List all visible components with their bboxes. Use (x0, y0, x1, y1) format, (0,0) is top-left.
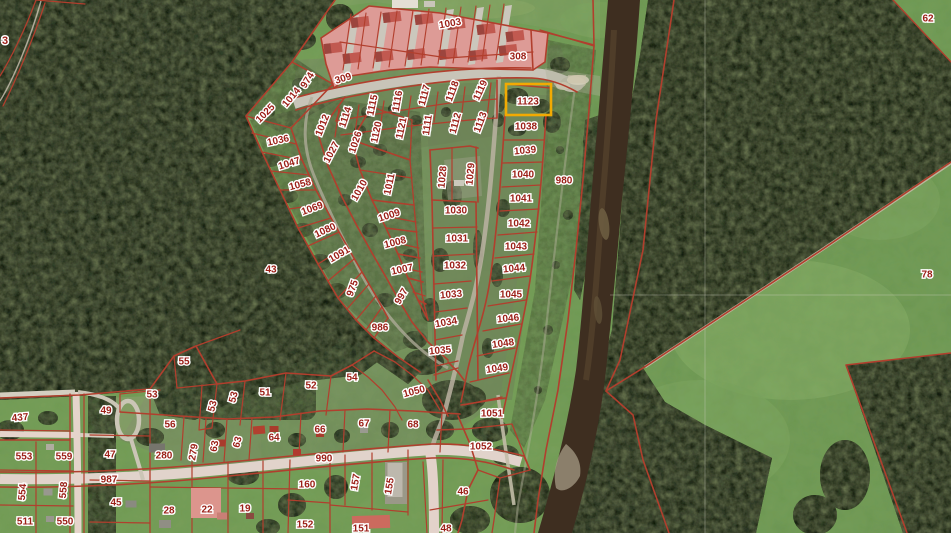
svg-text:19: 19 (239, 504, 251, 515)
svg-text:986: 986 (372, 323, 389, 334)
svg-text:68: 68 (407, 420, 419, 431)
svg-text:64: 64 (268, 433, 280, 444)
svg-text:553: 553 (16, 452, 33, 463)
svg-text:554: 554 (17, 483, 29, 501)
svg-text:280: 280 (156, 451, 173, 462)
svg-text:980: 980 (556, 176, 573, 187)
svg-text:1030: 1030 (445, 206, 468, 217)
svg-text:987: 987 (101, 475, 118, 486)
svg-text:67: 67 (358, 419, 370, 430)
svg-text:1042: 1042 (508, 219, 531, 230)
svg-text:1028: 1028 (437, 165, 450, 189)
svg-text:46: 46 (457, 487, 469, 498)
svg-text:53: 53 (146, 390, 158, 401)
svg-text:1045: 1045 (500, 290, 523, 301)
svg-text:55: 55 (178, 357, 190, 368)
svg-text:559: 559 (56, 452, 73, 463)
svg-text:1052: 1052 (470, 442, 493, 453)
svg-text:151: 151 (353, 524, 370, 533)
svg-text:152: 152 (297, 520, 314, 531)
svg-text:1041: 1041 (510, 194, 533, 205)
svg-text:1046: 1046 (497, 313, 521, 326)
svg-text:990: 990 (316, 454, 333, 465)
svg-text:1040: 1040 (512, 170, 535, 181)
svg-text:48: 48 (440, 524, 452, 533)
svg-text:558: 558 (58, 481, 70, 499)
svg-text:1123: 1123 (517, 97, 539, 108)
svg-text:52: 52 (305, 381, 317, 392)
svg-text:45: 45 (110, 498, 122, 509)
svg-text:308: 308 (510, 52, 527, 63)
svg-text:1029: 1029 (465, 162, 478, 186)
svg-text:66: 66 (314, 425, 326, 436)
svg-text:51: 51 (259, 388, 271, 399)
svg-text:437: 437 (11, 412, 29, 424)
svg-text:47: 47 (104, 450, 116, 461)
svg-text:1043: 1043 (505, 242, 528, 253)
svg-text:1031: 1031 (446, 234, 469, 245)
svg-text:160: 160 (299, 480, 316, 491)
svg-text:54: 54 (346, 373, 358, 384)
svg-text:28: 28 (163, 506, 175, 517)
svg-text:1035: 1035 (429, 345, 453, 358)
svg-text:22: 22 (201, 505, 213, 516)
svg-text:62: 62 (922, 14, 934, 25)
svg-text:1032: 1032 (444, 261, 467, 272)
svg-text:550: 550 (57, 517, 74, 528)
svg-text:56: 56 (164, 420, 176, 431)
svg-text:1033: 1033 (440, 289, 464, 302)
svg-text:1044: 1044 (503, 263, 527, 276)
svg-text:1039: 1039 (514, 145, 538, 158)
svg-text:49: 49 (100, 406, 112, 417)
svg-text:3: 3 (2, 35, 8, 47)
svg-text:1038: 1038 (515, 122, 538, 133)
svg-text:78: 78 (921, 270, 933, 281)
svg-text:511: 511 (17, 517, 34, 528)
svg-text:1051: 1051 (481, 409, 504, 420)
svg-text:43: 43 (265, 265, 277, 276)
